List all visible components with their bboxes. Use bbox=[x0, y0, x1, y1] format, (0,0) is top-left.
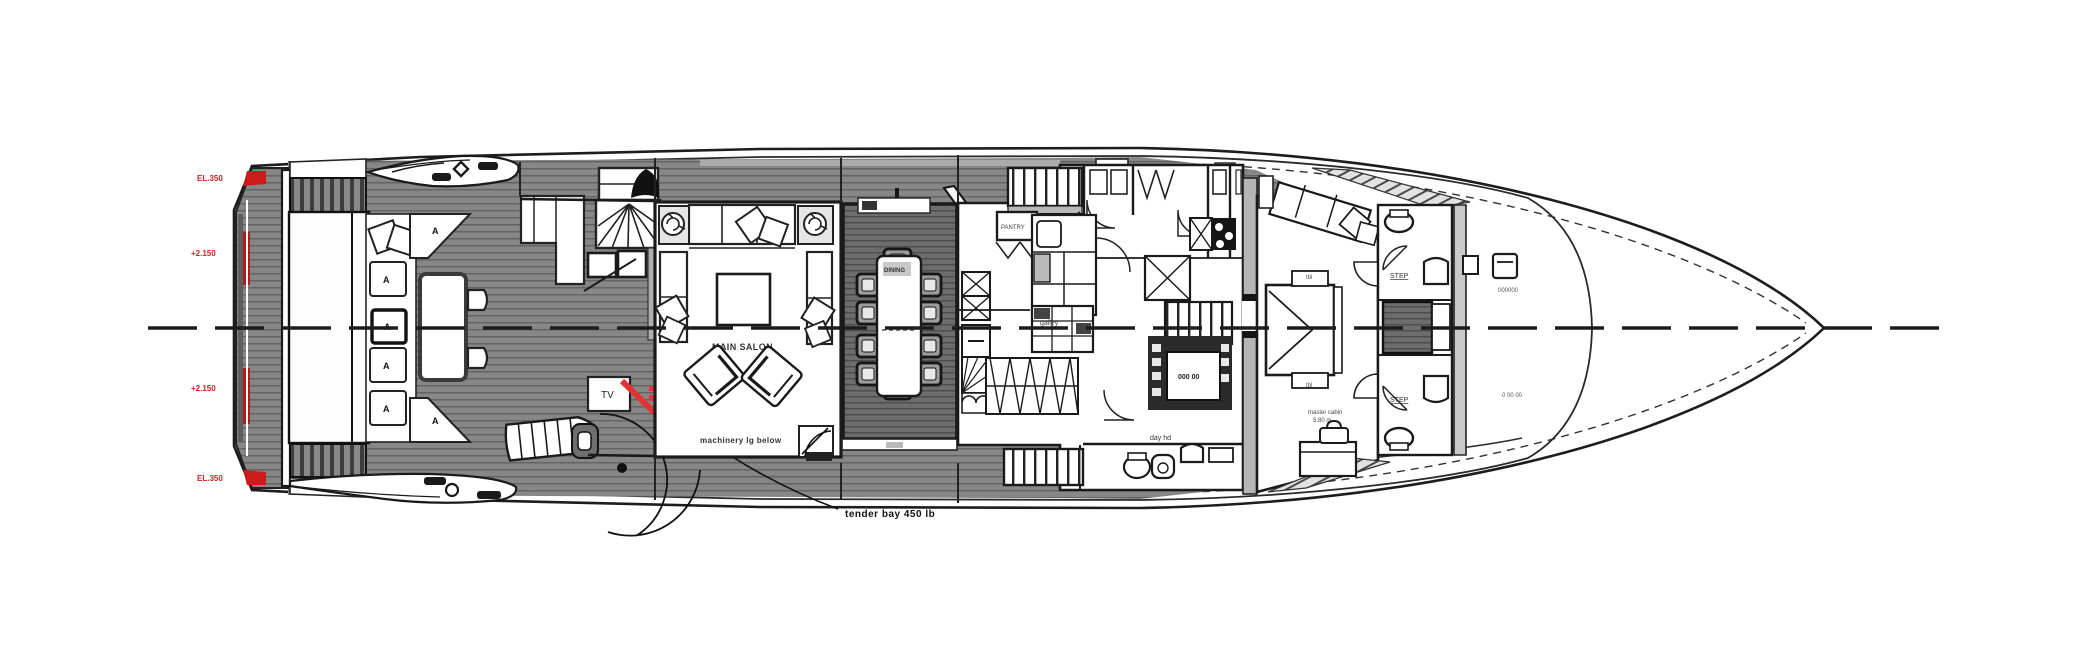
svg-text:tbl: tbl bbox=[1306, 383, 1312, 389]
svg-text:TV: TV bbox=[601, 390, 614, 401]
svg-text:A: A bbox=[383, 404, 390, 414]
svg-text:A: A bbox=[432, 226, 439, 236]
svg-text:+2.150: +2.150 bbox=[191, 384, 216, 393]
svg-text:000 00: 000 00 bbox=[1178, 374, 1200, 381]
svg-text:000000: 000000 bbox=[1498, 288, 1519, 294]
svg-text:0 00 00: 0 00 00 bbox=[1502, 393, 1523, 399]
svg-text:day hd: day hd bbox=[1150, 435, 1171, 442]
svg-text:EL.350: EL.350 bbox=[197, 474, 223, 483]
svg-text:STEP: STEP bbox=[1390, 397, 1409, 404]
svg-text:STEP: STEP bbox=[1390, 273, 1409, 280]
svg-text:A: A bbox=[383, 361, 390, 371]
svg-text:DINING: DINING bbox=[884, 268, 905, 274]
svg-text:machinery lg below: machinery lg below bbox=[700, 436, 782, 445]
svg-text:PANTRY: PANTRY bbox=[1001, 225, 1025, 231]
svg-text:A: A bbox=[383, 275, 390, 285]
svg-text:tender bay 450 lb: tender bay 450 lb bbox=[845, 509, 935, 520]
svg-text:master cabin: master cabin bbox=[1308, 410, 1342, 416]
svg-text:A: A bbox=[432, 416, 439, 426]
svg-text:galley: galley bbox=[1040, 320, 1059, 327]
svg-text:EL.350: EL.350 bbox=[197, 174, 223, 183]
svg-text:tbl: tbl bbox=[1306, 275, 1312, 281]
svg-text:+2.150: +2.150 bbox=[191, 249, 216, 258]
